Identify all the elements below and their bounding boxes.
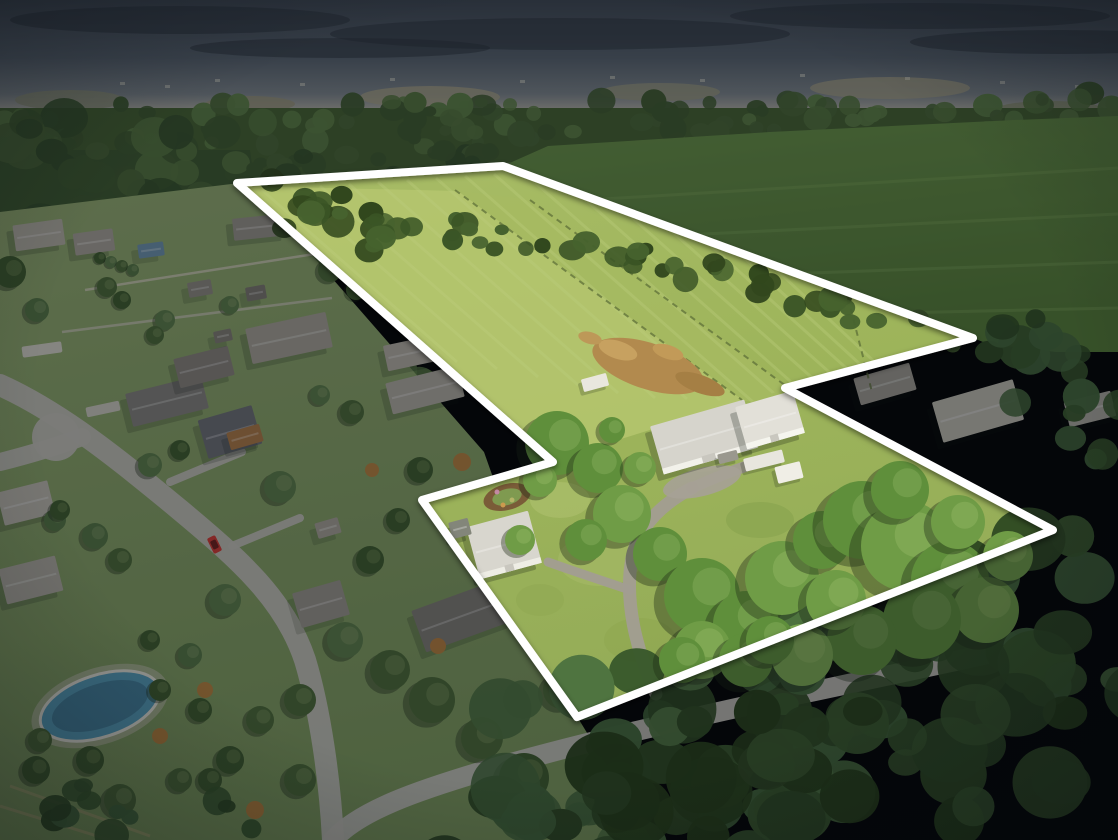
vignette <box>0 0 1118 840</box>
aerial-photo-canvas <box>0 0 1118 840</box>
aerial-property-photo <box>0 0 1118 840</box>
